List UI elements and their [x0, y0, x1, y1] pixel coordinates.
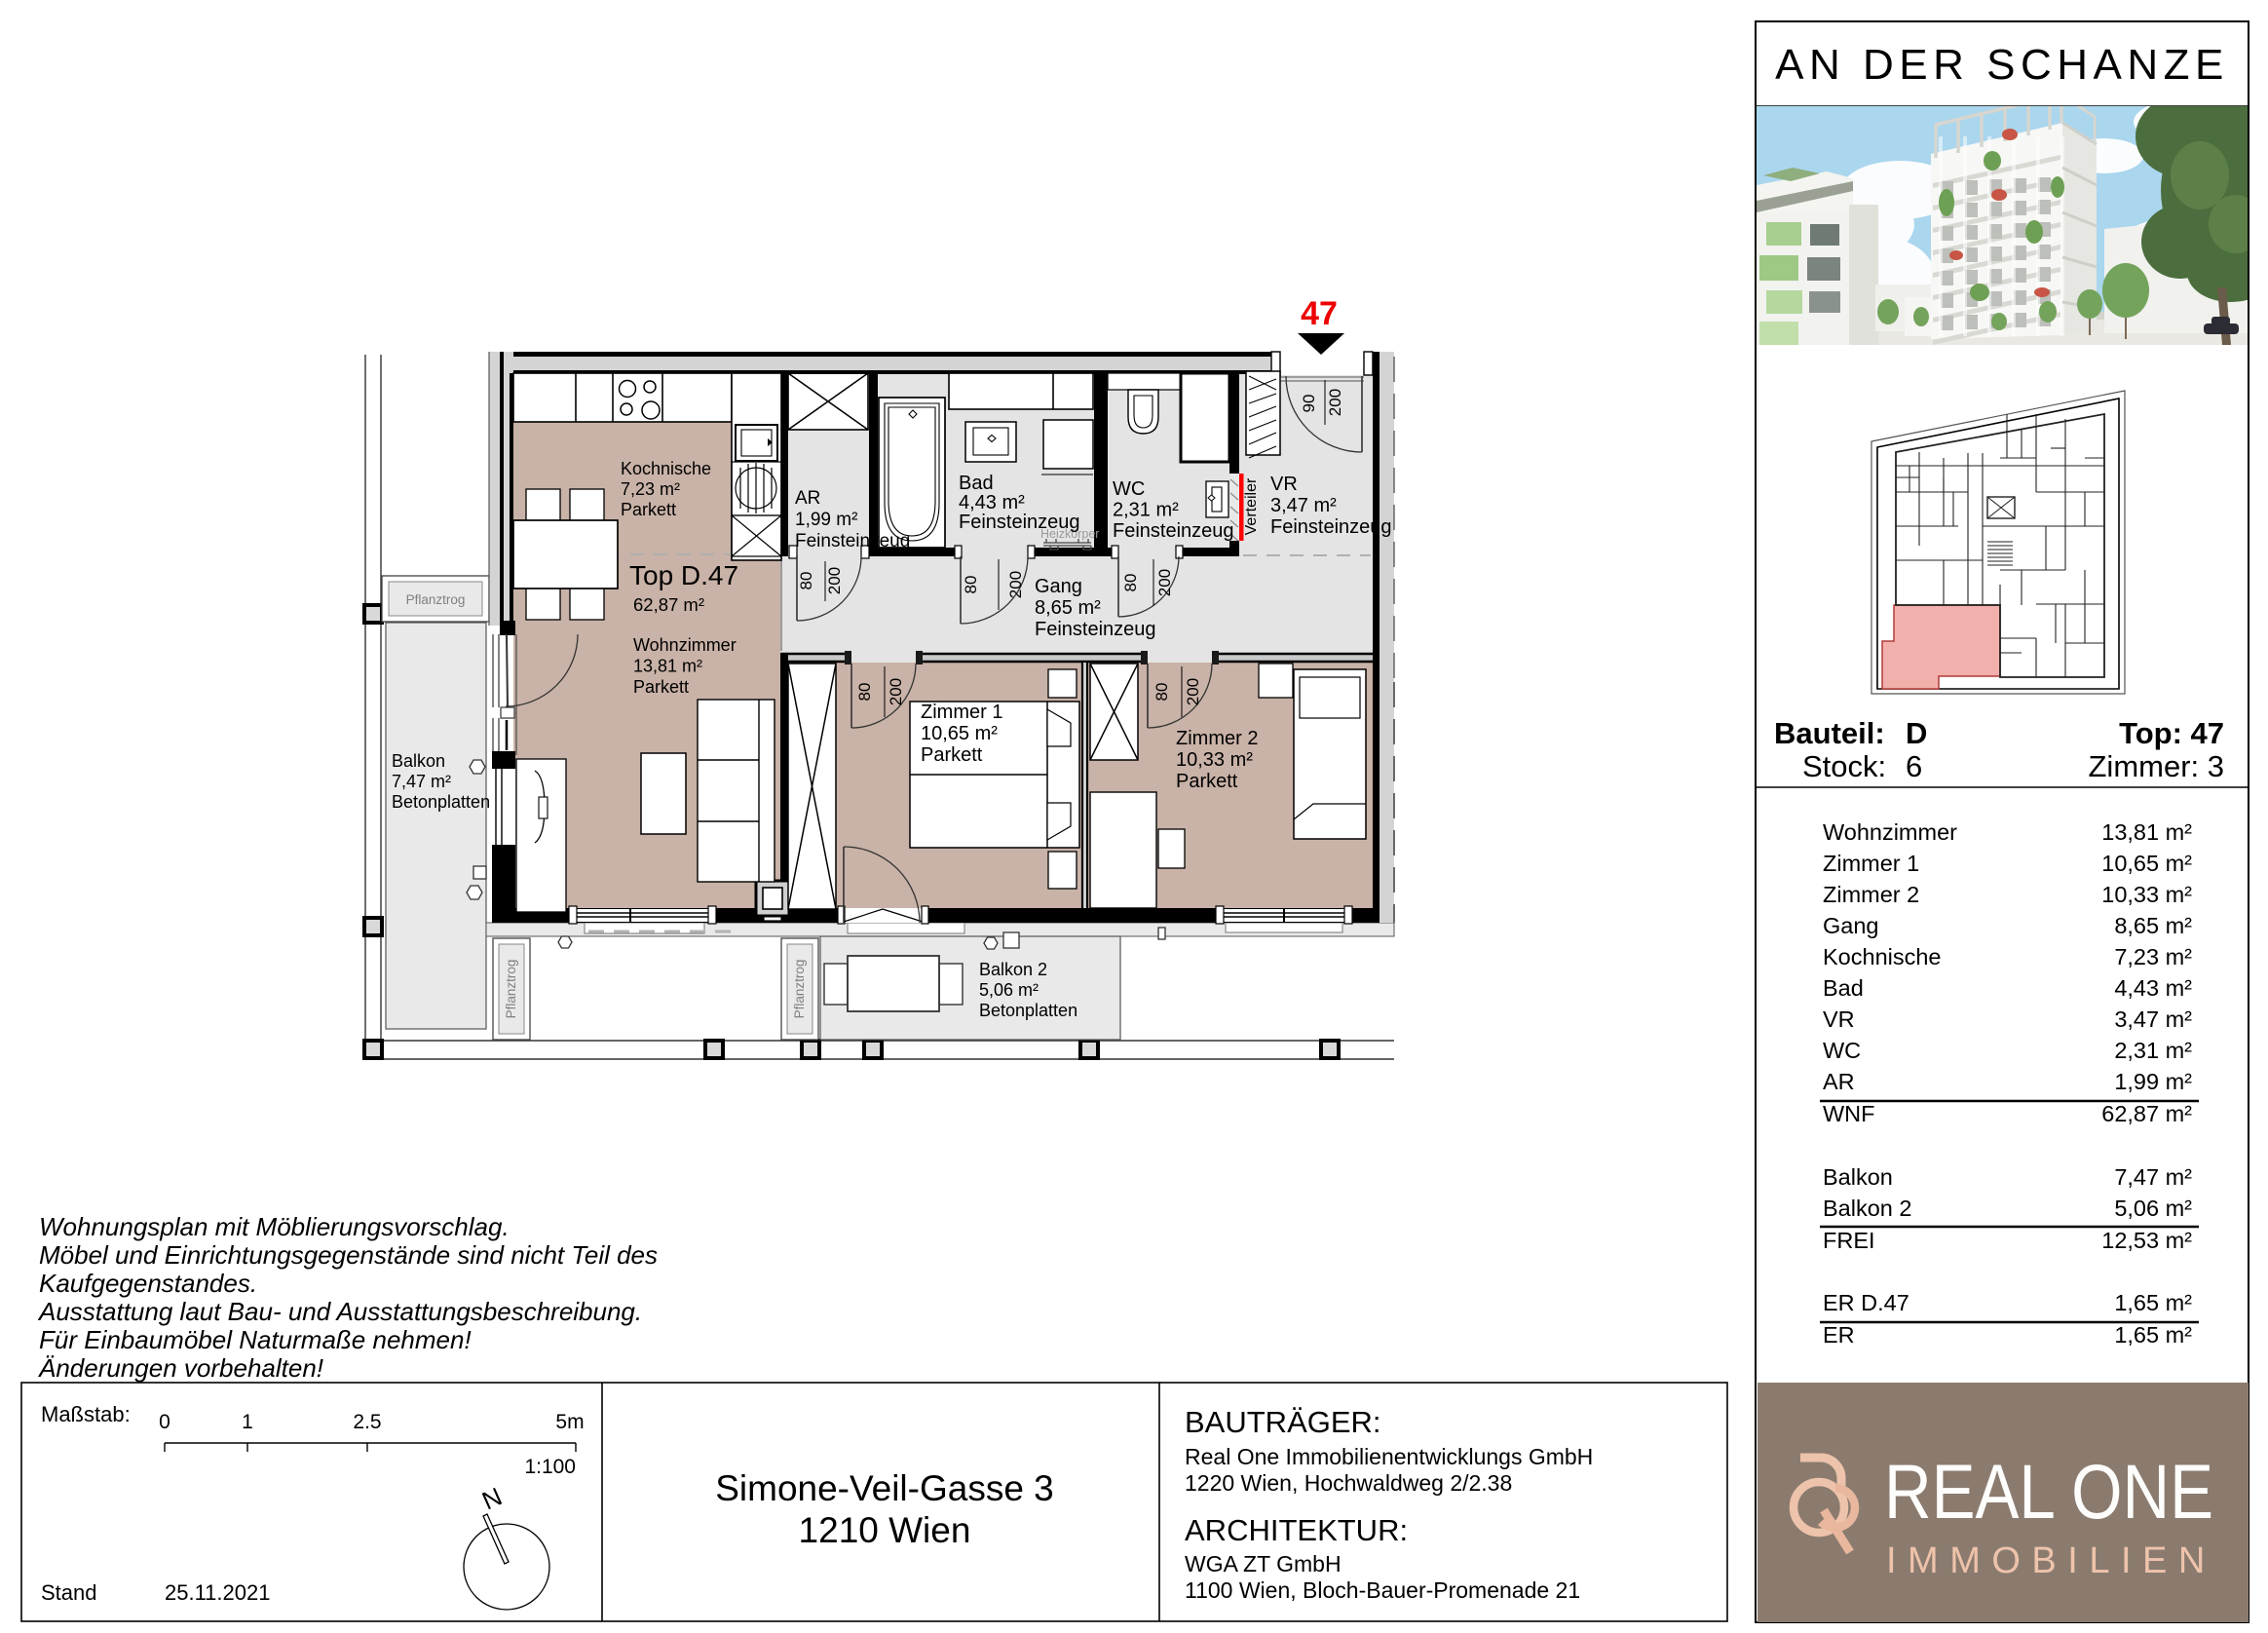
- svg-text:1,99 m²: 1,99 m²: [2114, 1069, 2192, 1094]
- svg-text:2.5: 2.5: [353, 1411, 381, 1433]
- svg-text:Balkon: Balkon: [392, 751, 445, 771]
- svg-text:WNF: WNF: [1823, 1101, 1875, 1126]
- svg-text:1:100: 1:100: [524, 1456, 576, 1478]
- svg-text:4,43 m²: 4,43 m²: [2114, 975, 2192, 1001]
- svg-text:7,23 m²: 7,23 m²: [2114, 944, 2192, 969]
- svg-text:VR: VR: [1270, 474, 1298, 495]
- svg-text:7,47 m²: 7,47 m²: [392, 772, 451, 791]
- svg-text:Feinsteinzeug: Feinsteinzeug: [959, 512, 1080, 533]
- svg-text:1100 Wien, Bloch-Bauer-Promena: 1100 Wien, Bloch-Bauer-Promenade 21: [1185, 1577, 1580, 1603]
- svg-text:Balkon 2: Balkon 2: [979, 960, 1047, 979]
- svg-text:8,65 m²: 8,65 m²: [1035, 597, 1101, 619]
- svg-text:62,87 m²: 62,87 m²: [633, 594, 704, 615]
- svg-text:Möbel und Einrichtungsgegenstä: Möbel und Einrichtungsgegenstände sind n…: [39, 1240, 658, 1270]
- svg-text:Top D.47: Top D.47: [629, 560, 738, 590]
- svg-text:Wohnzimmer: Wohnzimmer: [633, 635, 737, 655]
- svg-text:D: D: [1906, 716, 1927, 750]
- svg-text:10,33 m²: 10,33 m²: [1176, 749, 1253, 771]
- svg-text:Bauteil:: Bauteil:: [1774, 716, 1885, 750]
- svg-text:WC: WC: [1823, 1038, 1861, 1063]
- svg-text:13,81 m²: 13,81 m²: [633, 657, 702, 676]
- svg-text:1220 Wien, Hochwaldweg 2/2.38: 1220 Wien, Hochwaldweg 2/2.38: [1185, 1470, 1512, 1496]
- svg-text:Verteiler: Verteiler: [1243, 477, 1260, 535]
- svg-text:Pflanztrog: Pflanztrog: [792, 960, 807, 1019]
- svg-text:Parkett: Parkett: [621, 500, 676, 519]
- svg-text:3,47 m²: 3,47 m²: [1270, 495, 1337, 516]
- svg-text:12,53 m²: 12,53 m²: [2101, 1228, 2192, 1253]
- svg-text:Für Einbaumöbel Naturmaße nehm: Für Einbaumöbel Naturmaße nehmen!: [39, 1325, 472, 1354]
- svg-text:Bad: Bad: [959, 473, 994, 494]
- svg-text:1,65 m²: 1,65 m²: [2114, 1290, 2192, 1315]
- svg-text:13,81 m²: 13,81 m²: [2101, 819, 2192, 845]
- svg-text:Gang: Gang: [1823, 913, 1879, 938]
- svg-text:80: 80: [855, 683, 874, 702]
- svg-text:Balkon: Balkon: [1823, 1164, 1893, 1190]
- svg-text:FREI: FREI: [1823, 1228, 1875, 1253]
- svg-text:Kaufgegenstandes.: Kaufgegenstandes.: [39, 1269, 257, 1298]
- svg-text:Balkon 2: Balkon 2: [1823, 1196, 1911, 1221]
- svg-text:N: N: [477, 1481, 506, 1515]
- svg-text:80: 80: [1153, 683, 1171, 702]
- svg-text:5m: 5m: [555, 1411, 584, 1433]
- svg-text:Parkett: Parkett: [633, 677, 689, 697]
- svg-text:200: 200: [1155, 569, 1174, 596]
- svg-text:Bad: Bad: [1823, 975, 1864, 1001]
- svg-text:WGA ZT GmbH: WGA ZT GmbH: [1185, 1551, 1342, 1576]
- svg-text:BAUTRÄGER:: BAUTRÄGER:: [1185, 1405, 1381, 1439]
- svg-text:80: 80: [962, 576, 980, 594]
- svg-text:AR: AR: [1823, 1069, 1855, 1094]
- svg-text:Real One Immobilienentwicklung: Real One Immobilienentwicklungs GmbH: [1185, 1444, 1593, 1469]
- svg-text:Betonplatten: Betonplatten: [979, 1001, 1077, 1020]
- svg-text:8,65 m²: 8,65 m²: [2114, 913, 2192, 938]
- svg-text:IMMOBILIEN: IMMOBILIEN: [1886, 1540, 2216, 1581]
- svg-text:Kochnische: Kochnische: [1823, 944, 1942, 969]
- svg-text:Feinsteinzeug: Feinsteinzeug: [1113, 520, 1234, 542]
- svg-text:ER D.47: ER D.47: [1823, 1290, 1909, 1315]
- svg-text:200: 200: [887, 678, 905, 705]
- svg-text:Feinsteinzeug: Feinsteinzeug: [795, 531, 910, 551]
- svg-text:5,06 m²: 5,06 m²: [979, 980, 1039, 1000]
- svg-text:7,47 m²: 7,47 m²: [2114, 1164, 2192, 1190]
- svg-text:0: 0: [159, 1411, 170, 1433]
- svg-text:3,47 m²: 3,47 m²: [2114, 1006, 2192, 1032]
- svg-text:ER: ER: [1823, 1322, 1855, 1348]
- svg-text:Parkett: Parkett: [1176, 771, 1238, 792]
- svg-text:25.11.2021: 25.11.2021: [165, 1580, 270, 1605]
- svg-text:REAL ONE: REAL ONE: [1884, 1448, 2213, 1535]
- svg-text:200: 200: [1184, 678, 1202, 705]
- svg-text:Gang: Gang: [1035, 576, 1082, 597]
- svg-text:1210 Wien: 1210 Wien: [799, 1510, 971, 1550]
- svg-text:Zimmer: 3: Zimmer: 3: [2089, 749, 2225, 783]
- svg-text:90: 90: [1300, 395, 1318, 413]
- svg-text:Stock:: Stock:: [1802, 749, 1886, 783]
- svg-text:Kochnische: Kochnische: [621, 459, 711, 478]
- svg-text:80: 80: [1121, 574, 1140, 592]
- svg-text:2,31 m²: 2,31 m²: [1113, 500, 1179, 521]
- svg-text:6: 6: [1906, 749, 1922, 783]
- svg-text:Wohnungsplan mit Möblierungsvo: Wohnungsplan mit Möblierungsvorschlag.: [39, 1212, 510, 1241]
- svg-text:Parkett: Parkett: [921, 744, 983, 766]
- svg-text:AN DER SCHANZE: AN DER SCHANZE: [1775, 41, 2229, 89]
- svg-text:200: 200: [825, 567, 844, 594]
- svg-text:10,65 m²: 10,65 m²: [921, 723, 998, 744]
- svg-text:Pflanztrog: Pflanztrog: [406, 592, 466, 607]
- svg-text:Zimmer 1: Zimmer 1: [921, 702, 1002, 723]
- svg-text:Simone-Veil-Gasse 3: Simone-Veil-Gasse 3: [715, 1468, 1054, 1508]
- svg-text:62,87 m²: 62,87 m²: [2101, 1101, 2192, 1126]
- svg-text:AR: AR: [795, 488, 820, 509]
- svg-text:Stand: Stand: [41, 1580, 97, 1605]
- svg-text:Änderungen vorbehalten!: Änderungen vorbehalten!: [37, 1353, 323, 1383]
- svg-text:1,65 m²: 1,65 m²: [2114, 1322, 2192, 1348]
- svg-text:7,23 m²: 7,23 m²: [621, 479, 680, 499]
- svg-text:Pflanztrog: Pflanztrog: [504, 960, 518, 1019]
- svg-text:WC: WC: [1113, 478, 1145, 500]
- svg-text:80: 80: [797, 572, 815, 590]
- svg-text:Top: 47: Top: 47: [2119, 716, 2224, 750]
- svg-text:Feinsteinzeug: Feinsteinzeug: [1270, 516, 1392, 538]
- svg-text:Zimmer 2: Zimmer 2: [1176, 728, 1258, 749]
- svg-text:Wohnzimmer: Wohnzimmer: [1823, 819, 1957, 845]
- svg-text:10,33 m²: 10,33 m²: [2101, 882, 2192, 907]
- svg-text:Zimmer 1: Zimmer 1: [1823, 851, 1919, 876]
- svg-text:Maßstab:: Maßstab:: [41, 1402, 131, 1426]
- svg-text:200: 200: [1006, 571, 1025, 598]
- svg-text:1,99 m²: 1,99 m²: [795, 510, 857, 530]
- svg-text:5,06 m²: 5,06 m²: [2114, 1196, 2192, 1221]
- svg-text:Feinsteinzeug: Feinsteinzeug: [1035, 619, 1156, 640]
- svg-text:2,31 m²: 2,31 m²: [2114, 1038, 2192, 1063]
- svg-text:Betonplatten: Betonplatten: [392, 792, 490, 812]
- svg-text:47: 47: [1301, 295, 1338, 332]
- svg-text:200: 200: [1326, 389, 1344, 416]
- svg-text:10,65 m²: 10,65 m²: [2101, 851, 2192, 876]
- svg-text:VR: VR: [1823, 1006, 1855, 1032]
- svg-text:ARCHITEKTUR:: ARCHITEKTUR:: [1185, 1513, 1408, 1547]
- svg-text:4,43 m²: 4,43 m²: [959, 492, 1025, 513]
- svg-text:1: 1: [242, 1411, 253, 1433]
- svg-text:Zimmer 2: Zimmer 2: [1823, 882, 1919, 907]
- svg-text:Ausstattung laut Bau- und Auss: Ausstattung laut Bau- und Ausstattungsbe…: [37, 1297, 642, 1326]
